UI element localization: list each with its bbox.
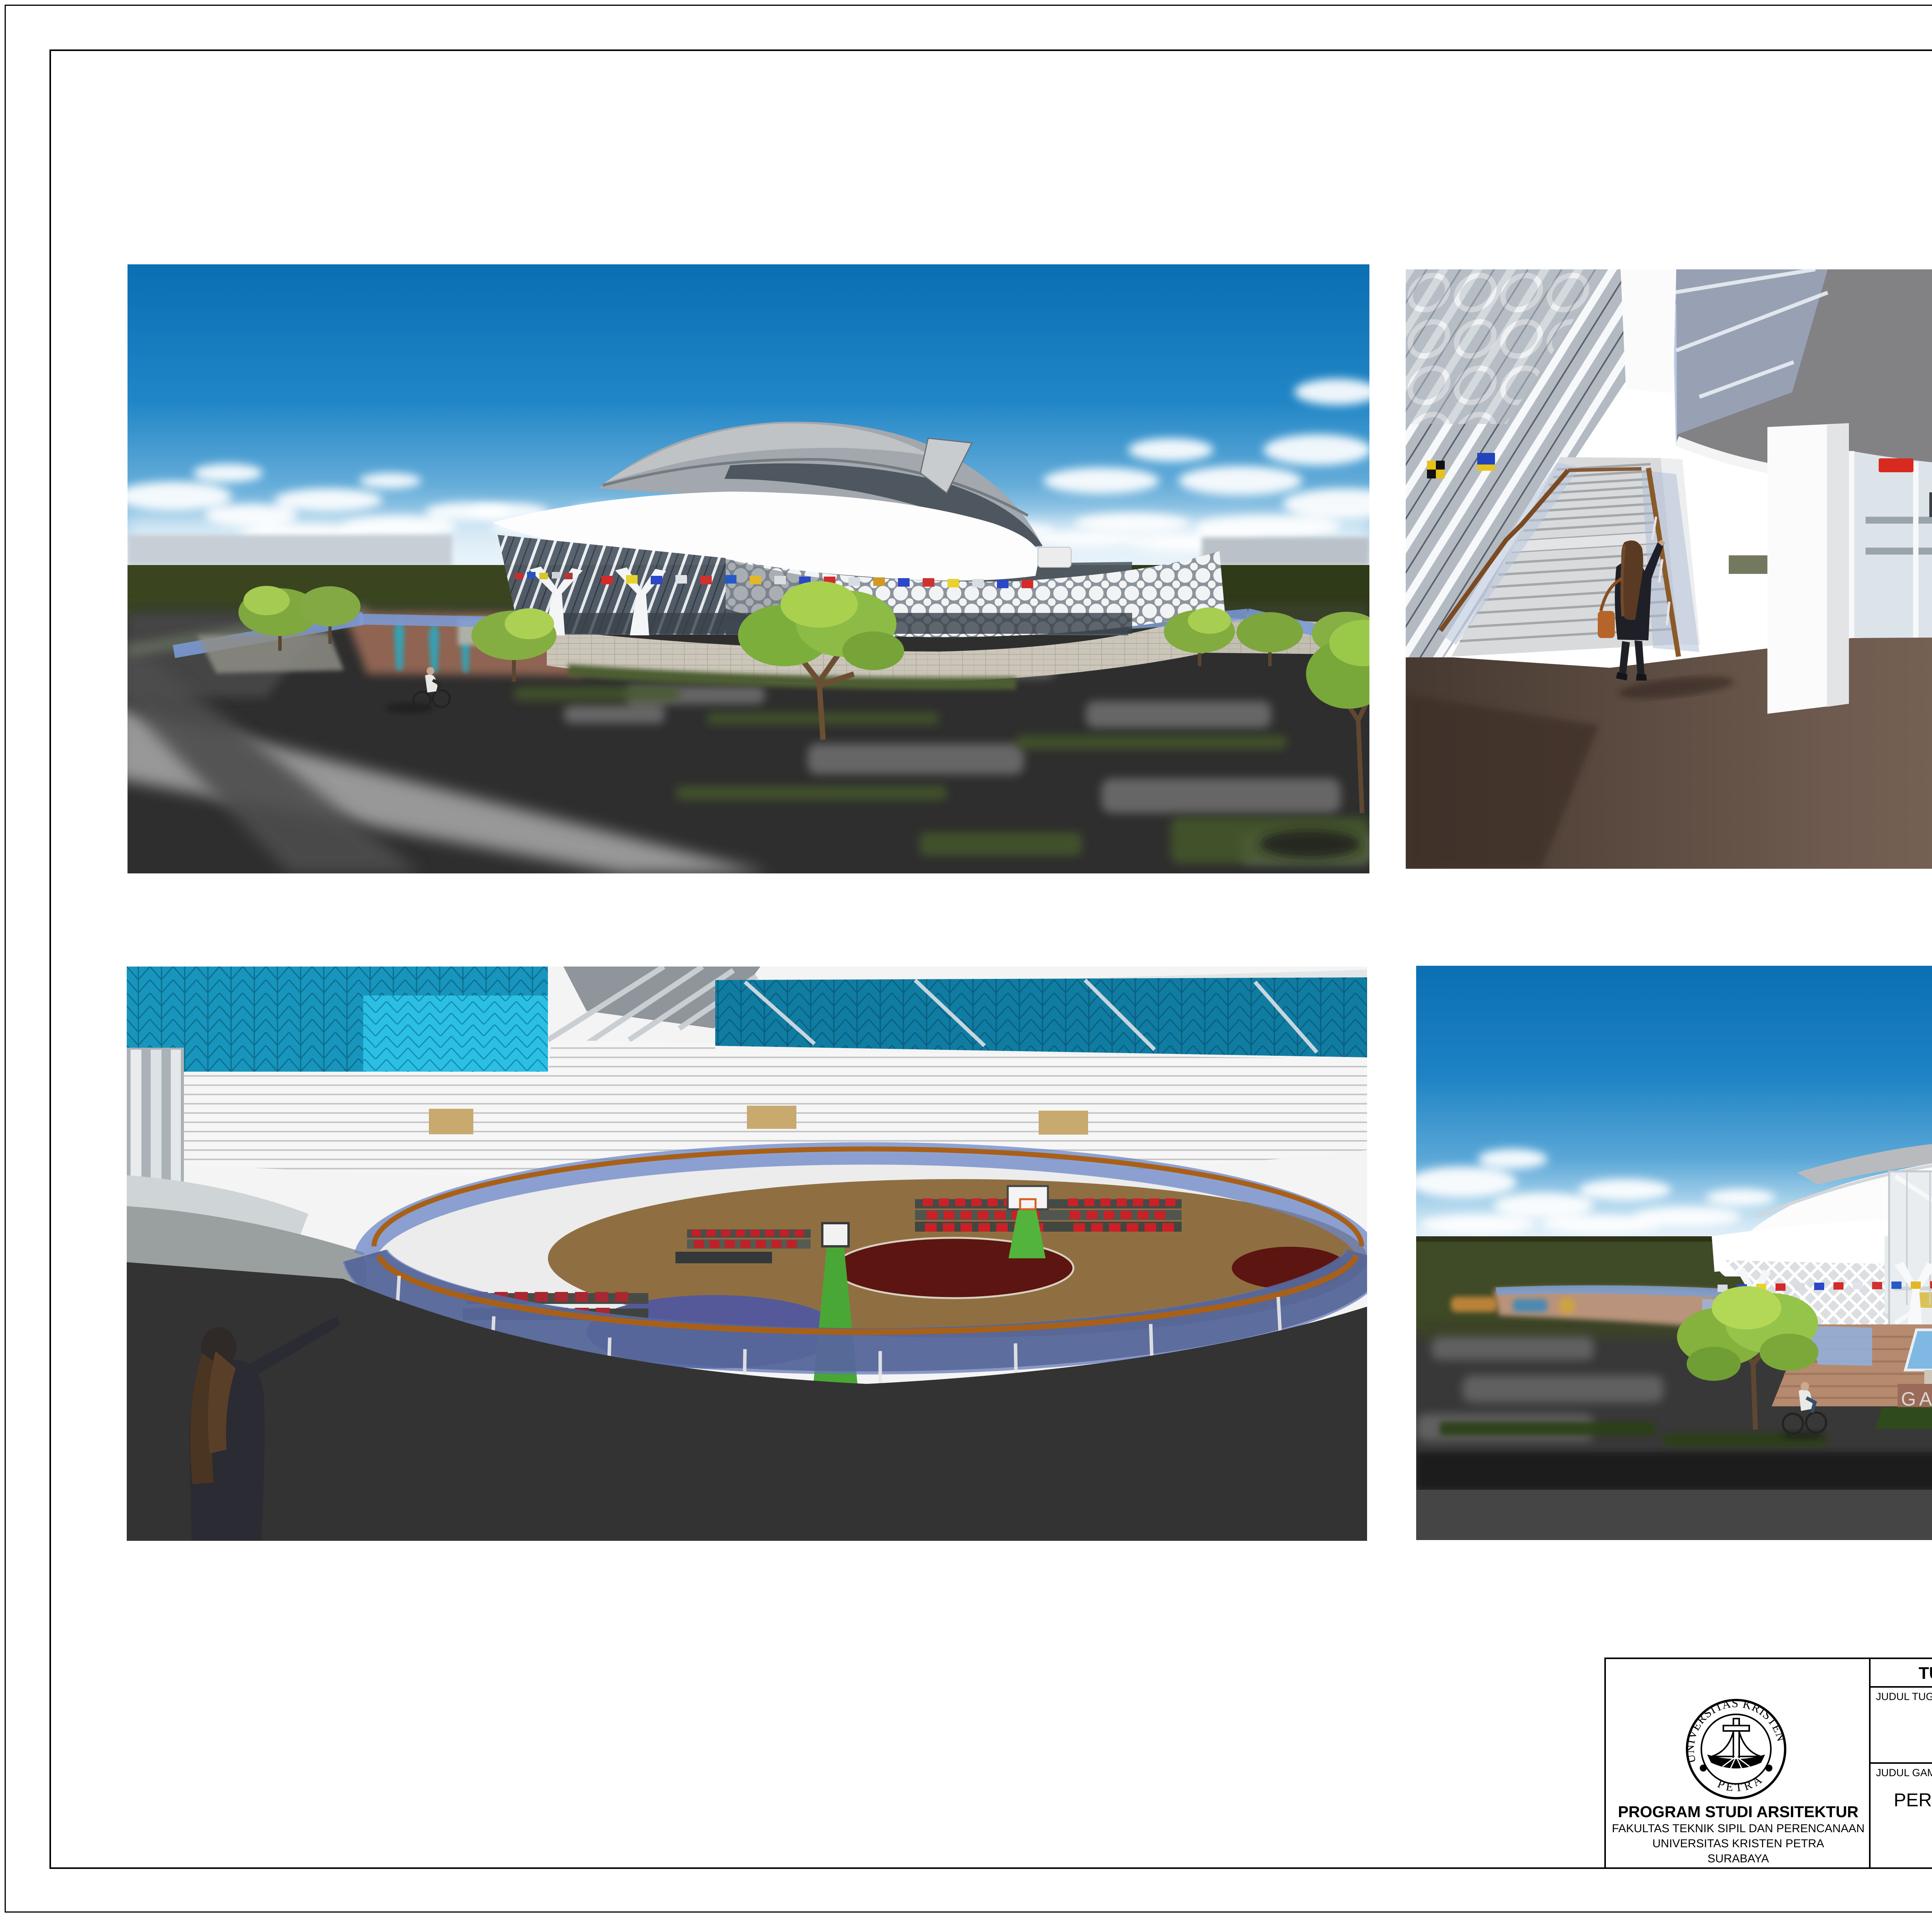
svg-text:GARUDA ARENA: GARUDA ARENA (1901, 1388, 1932, 1410)
